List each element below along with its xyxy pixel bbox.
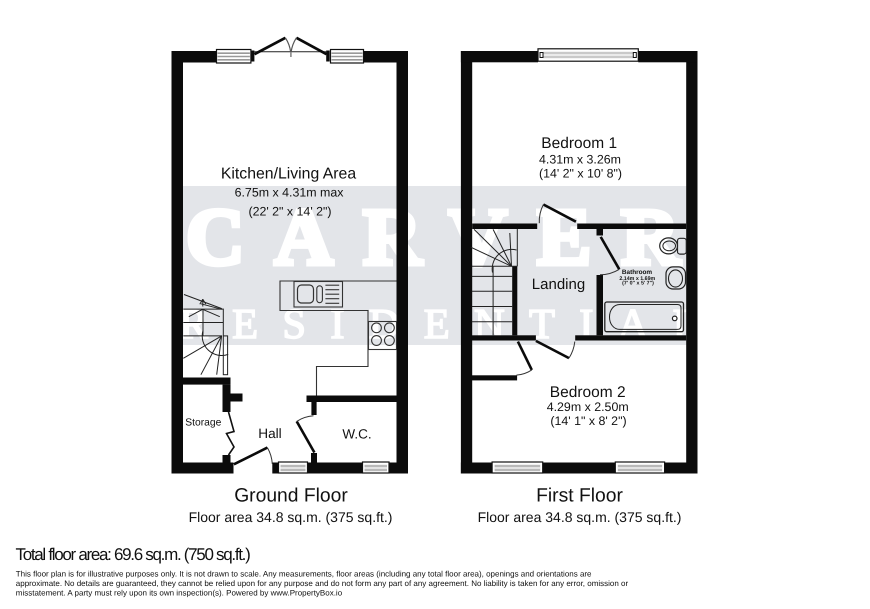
svg-text:(14' 2" x 10' 8"): (14' 2" x 10' 8") bbox=[539, 166, 622, 180]
svg-text:4.31m x 3.26m: 4.31m x 3.26m bbox=[539, 152, 621, 166]
svg-text:4.29m x 2.50m: 4.29m x 2.50m bbox=[547, 400, 629, 414]
svg-text:(7' 0" x 5' 7"): (7' 0" x 5' 7") bbox=[622, 281, 654, 287]
svg-text:Floor area 34.8 sq.m. (375 sq.: Floor area 34.8 sq.m. (375 sq.ft.) bbox=[189, 509, 393, 525]
svg-text:(22' 2" x 14' 2"): (22' 2" x 14' 2") bbox=[248, 205, 331, 219]
svg-text:Bedroom 2: Bedroom 2 bbox=[550, 384, 626, 401]
svg-text:First Floor: First Floor bbox=[536, 486, 623, 507]
svg-text:RESIDENTIAL: RESIDENTIAL bbox=[180, 301, 724, 348]
svg-text:(14' 1" x 8' 2"): (14' 1" x 8' 2") bbox=[550, 414, 626, 428]
svg-text:Bedroom 1: Bedroom 1 bbox=[541, 135, 617, 152]
svg-text:6.75m x 4.31m max: 6.75m x 4.31m max bbox=[235, 185, 345, 199]
svg-text:W.C.: W.C. bbox=[342, 427, 371, 442]
svg-text:Total floor area: 69.6 sq.m. (: Total floor area: 69.6 sq.m. (750 sq.ft.… bbox=[16, 545, 251, 564]
svg-text:misstatement. A party must rel: misstatement. A party must rely upon its… bbox=[16, 588, 343, 597]
svg-text:Kitchen/Living Area: Kitchen/Living Area bbox=[221, 166, 356, 183]
svg-text:This floor plan is for illustr: This floor plan is for illustrative purp… bbox=[16, 570, 592, 579]
svg-text:Hall: Hall bbox=[258, 426, 281, 441]
svg-text:Landing: Landing bbox=[532, 276, 585, 293]
svg-text:Floor area 34.8 sq.m. (375 sq.: Floor area 34.8 sq.m. (375 sq.ft.) bbox=[478, 509, 682, 525]
svg-text:Ground Floor: Ground Floor bbox=[234, 486, 348, 507]
svg-text:approximate. No details are gu: approximate. No details are guaranteed, … bbox=[16, 579, 629, 588]
svg-text:Storage: Storage bbox=[185, 417, 221, 428]
